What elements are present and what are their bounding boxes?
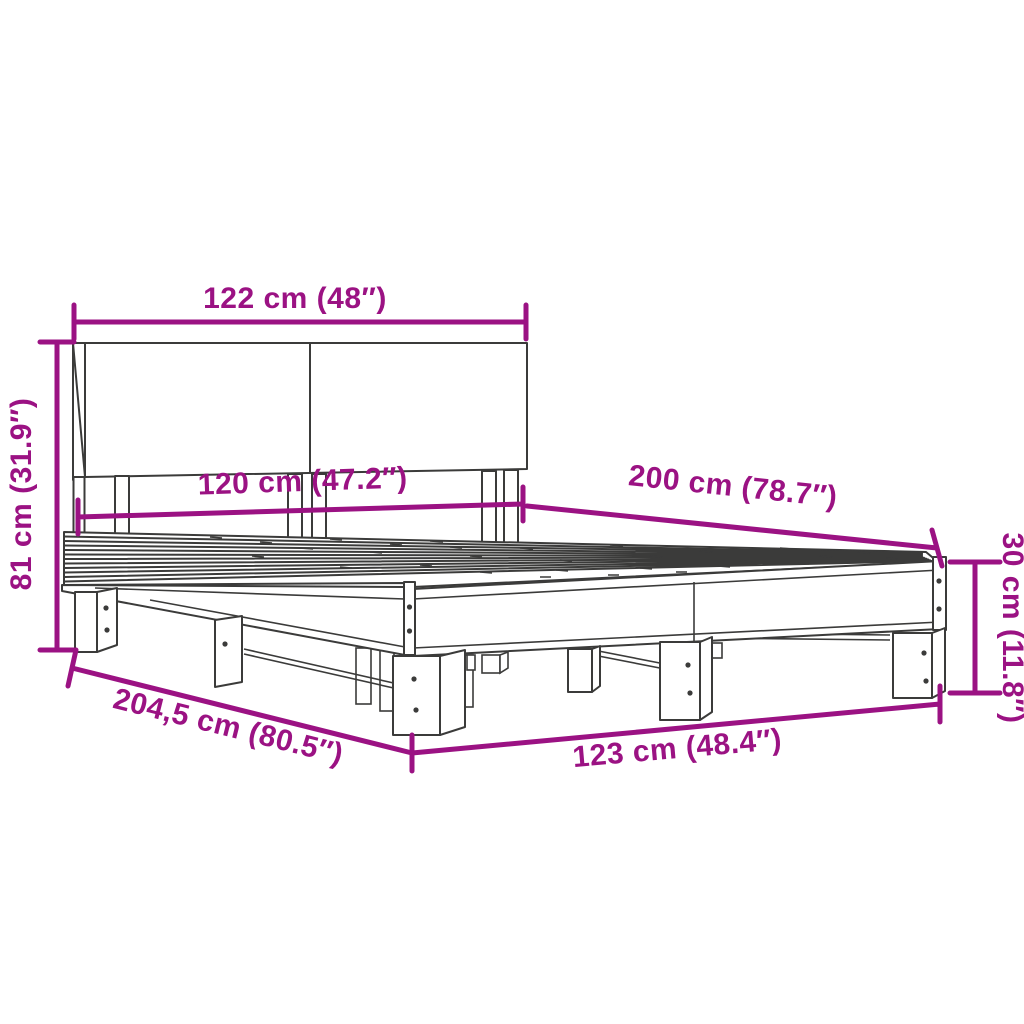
dimension-frame-height: 30 cm (11.8″) bbox=[950, 533, 1024, 724]
leg-front-left-corner bbox=[393, 650, 465, 735]
headboard-height-label: 81 cm (31.9″) bbox=[5, 398, 38, 591]
dimension-headboard-width: 122 cm (48″) bbox=[74, 282, 526, 339]
headboard bbox=[73, 343, 527, 480]
leg-mid-foot bbox=[568, 646, 600, 692]
frame-height-label: 30 cm (11.8″) bbox=[996, 533, 1024, 724]
dimension-headboard-height: 81 cm (31.9″) bbox=[5, 342, 74, 650]
leg-front-right bbox=[660, 637, 712, 720]
support-blocks bbox=[467, 652, 508, 673]
leg-back-left bbox=[75, 588, 117, 652]
diagram-svg: 122 cm (48″) 81 cm (31.9″) 120 cm (47.2″… bbox=[0, 0, 1024, 1024]
leg-mid-left bbox=[215, 616, 242, 687]
bed-frame-dimension-diagram: 122 cm (48″) 81 cm (31.9″) 120 cm (47.2″… bbox=[0, 0, 1024, 1024]
inner-width-label: 120 cm (47.2″) bbox=[197, 461, 408, 501]
bed-drawing bbox=[62, 343, 946, 735]
headboard-width-label: 122 cm (48″) bbox=[203, 282, 387, 315]
leg-far-right bbox=[893, 628, 945, 698]
length-label: 200 cm (78.7″) bbox=[627, 459, 839, 514]
